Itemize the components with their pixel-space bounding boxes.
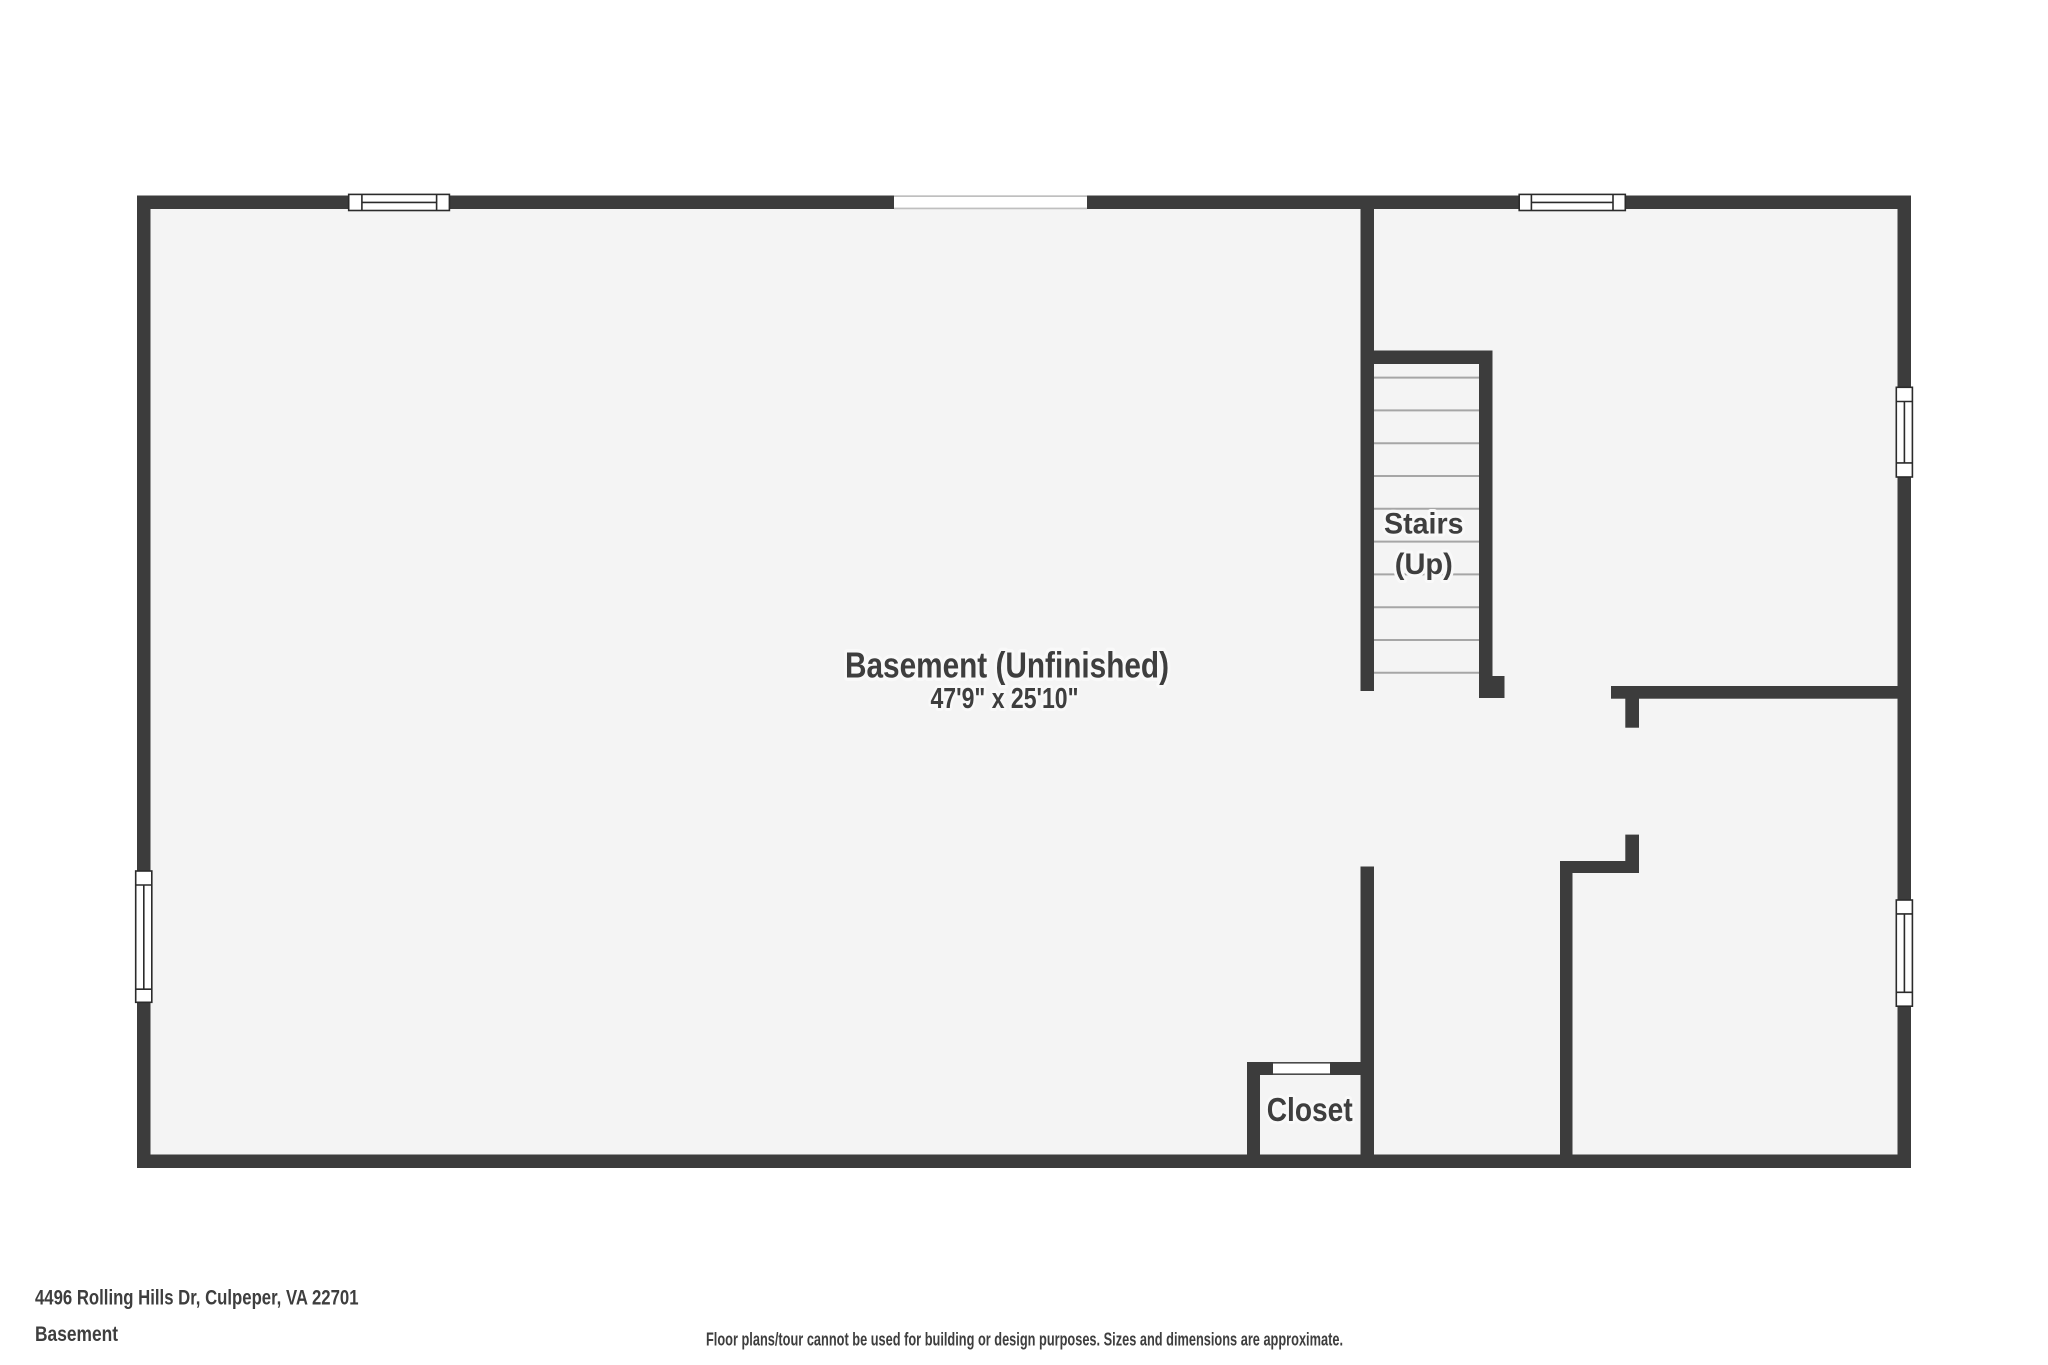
svg-text:Basement: Basement [35, 1322, 118, 1346]
svg-text:(Up): (Up) [1395, 548, 1453, 581]
svg-text:4496 Rolling Hills Dr, Culpepe: 4496 Rolling Hills Dr, Culpeper, VA 2270… [35, 1286, 359, 1310]
svg-text:Closet: Closet [1267, 1092, 1353, 1129]
svg-text:Basement (Unfinished): Basement (Unfinished) [845, 644, 1169, 685]
svg-text:Stairs: Stairs [1384, 508, 1464, 541]
svg-text:47'9" x 25'10": 47'9" x 25'10" [931, 682, 1079, 714]
svg-text:Floor plans/tour cannot be use: Floor plans/tour cannot be used for buil… [706, 1329, 1343, 1349]
